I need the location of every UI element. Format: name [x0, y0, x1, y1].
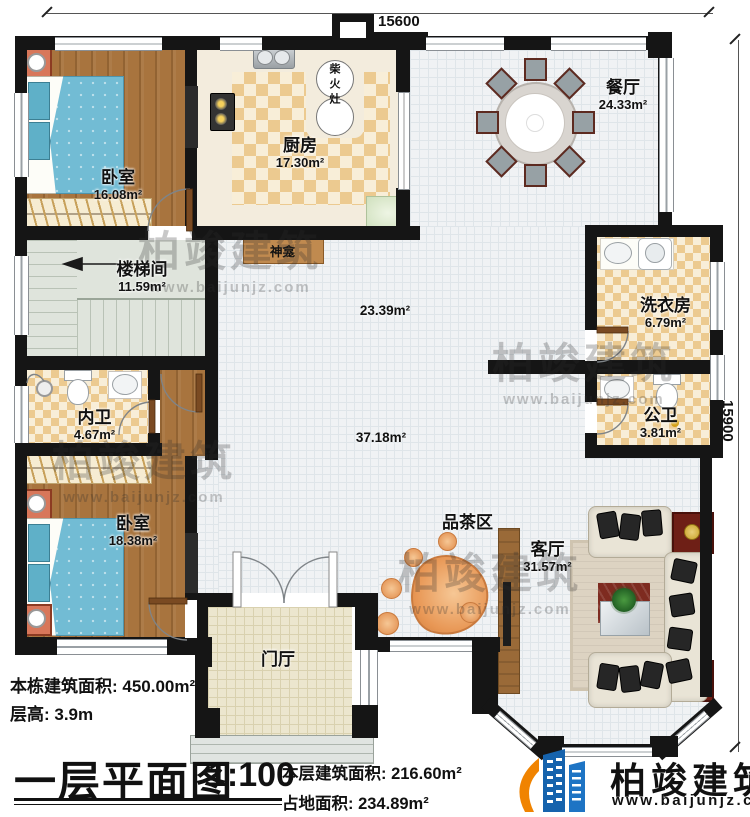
inner-bath-label: 内卫 4.67m² [52, 408, 137, 442]
building-total-area: 本栋建筑面积: 450.00m² [10, 672, 195, 697]
toilet-bowl [67, 379, 89, 405]
tea-stool-icon [460, 602, 481, 623]
bedroom2-label: 卧室 18.38m² [83, 514, 183, 548]
laundry-label: 洗衣房 6.79m² [618, 296, 713, 330]
public-bath-label: 公卫 3.81m² [618, 406, 703, 440]
bedroom1-label: 卧室 16.08m² [58, 168, 178, 202]
laundry-door-opening [585, 330, 597, 361]
pillow-icon [28, 564, 50, 602]
washbasin-bowl [604, 379, 630, 399]
end-table-medallion [684, 524, 700, 540]
wall-foyer-top-right [333, 593, 355, 607]
dimension-tick [41, 6, 52, 17]
bedroom1-door-opening [148, 226, 192, 240]
window-tea-south [390, 640, 472, 652]
room-area: 16.08m² [58, 188, 178, 203]
wall-public-bath-bottom [585, 445, 723, 458]
wall-kitchen-dining-top [396, 50, 410, 92]
room-name: 门厅 [238, 650, 318, 670]
tea-stool-icon [381, 578, 402, 599]
tea-stool-icon [404, 548, 423, 567]
tea-stool-icon [376, 612, 399, 635]
wood-stove-label: 柴火灶 [326, 63, 342, 133]
tv-icon [503, 582, 511, 646]
room-name: 餐厅 [578, 78, 668, 98]
room-area: 17.30m² [250, 156, 350, 171]
lamp-icon [27, 53, 46, 72]
room-name: 客厅 [500, 540, 595, 560]
dining-chair-icon [524, 58, 547, 81]
lamp-icon [27, 609, 46, 628]
room-name: 内卫 [52, 408, 137, 428]
dimension-top-label: 15600 [378, 13, 420, 30]
title-rule-light [14, 804, 282, 805]
title-rule-heavy [14, 798, 282, 801]
wall-living-right [700, 458, 712, 697]
chimney-icon [332, 14, 374, 46]
sofa-pillow [596, 663, 620, 692]
wall-kitchen-dining-bottom [396, 188, 410, 240]
sofa-pillow [641, 509, 663, 537]
tea-area-label: 品茶区 [420, 513, 515, 533]
room-name: 品茶区 [420, 513, 515, 533]
sofa-pillow [618, 513, 641, 541]
dimension-right-label: 15900 [719, 400, 736, 442]
tea-stool-icon [438, 532, 457, 551]
window-dining-top-left [426, 37, 504, 51]
floor-height: 层高: 3.9m [10, 700, 93, 725]
wall-foyer-top-left [195, 593, 237, 607]
closet-corridor-floor [160, 370, 205, 456]
wall-stairs-bottom [15, 356, 218, 370]
land-area: 占地面积: 234.89m² [282, 790, 429, 814]
living-label: 客厅 31.57m² [500, 540, 595, 574]
window-public-bath-right [710, 355, 725, 400]
plant-icon [612, 588, 636, 612]
laundry-sink-icon [604, 242, 632, 264]
dining-chair-icon [476, 111, 499, 134]
wall-inner-bath-bottom [15, 443, 162, 456]
room-area: 4.67m² [52, 428, 137, 443]
shrine-label: 神龛 [243, 241, 322, 260]
sofa-pillow [668, 592, 695, 617]
window-foyer-right [360, 650, 378, 705]
washbasin-bowl [112, 374, 138, 395]
wall-stairs-east [205, 240, 218, 460]
tv-panel-icon [185, 86, 198, 148]
wall-laundry-top [585, 225, 723, 237]
pillow-icon [28, 82, 50, 120]
room-area: 3.81m² [618, 426, 703, 441]
window-inner-bath-left [14, 386, 29, 443]
hall-area-upper: 23.39m² [340, 303, 430, 318]
room-area: 18.38m² [83, 534, 183, 549]
room-name: 洗衣房 [618, 296, 713, 316]
dimension-line-right [738, 40, 739, 752]
foyer-threshold [237, 593, 333, 607]
sofa-pillow [618, 665, 641, 693]
foyer-pillar [352, 708, 378, 738]
dining-chair-icon [524, 164, 547, 187]
room-name: 公卫 [618, 406, 703, 426]
stairs-flight-horizontal [77, 300, 205, 356]
stairs-landing-edge [77, 298, 205, 300]
sink-basin [257, 50, 273, 65]
floor-plan-canvas: 柴火灶 神龛 [0, 0, 750, 817]
inner-bath-door-opening [148, 400, 160, 433]
lamp-icon [27, 494, 46, 513]
room-area: 11.59m² [92, 280, 192, 295]
brand-logo-icon [505, 748, 605, 814]
room-name: 卧室 [83, 514, 183, 534]
wall-foyer-right-column [355, 593, 378, 650]
tv-panel-icon [185, 533, 198, 593]
room-name: 楼梯间 [92, 260, 192, 280]
pillow-icon [28, 524, 50, 562]
burner [215, 113, 227, 125]
sliding-door-icon [398, 92, 410, 190]
window-kitchen-top [220, 37, 262, 51]
pillow-icon [28, 122, 50, 160]
wardrobe-icon [24, 452, 152, 484]
sofa-pillow [667, 626, 694, 651]
foyer-floor [208, 607, 352, 735]
room-name: 厨房 [250, 136, 350, 156]
shower-head-icon [36, 380, 53, 397]
dimension-tick [703, 6, 714, 17]
floor-area: 本层建筑面积: 216.60m² [282, 760, 462, 784]
stairwell-label: 楼梯间 11.59m² [92, 260, 192, 294]
dining-chair-icon [572, 111, 595, 134]
sofa-pillow [670, 558, 698, 585]
window-bedroom2-bottom [57, 639, 167, 655]
wall-hall-north [15, 226, 420, 240]
room-area: 31.57m² [500, 560, 595, 575]
window-bedroom1-left [14, 93, 29, 177]
public-bath-door-opening [585, 402, 597, 433]
room-area: 24.33m² [578, 98, 668, 113]
bedroom2-door-opening [185, 600, 197, 638]
foyer-pillar [195, 708, 220, 738]
dining-table-center [526, 114, 544, 132]
brand-url: www.baijunjz.com [612, 792, 750, 809]
window-bedroom1-top [55, 37, 162, 51]
window-stairs-left [14, 256, 29, 335]
room-area: 6.79m² [618, 316, 713, 331]
wall-hall-living-divider [488, 360, 710, 374]
stairs-flight-vertical [27, 240, 77, 356]
hall-floor-west [197, 460, 218, 595]
washing-machine-drum [645, 243, 665, 263]
window-dining-top-right [551, 37, 646, 51]
dining-label: 餐厅 24.33m² [578, 78, 668, 112]
hall-area-lower: 37.18m² [336, 430, 426, 445]
room-name: 卧室 [58, 168, 178, 188]
sofa-pillow [596, 510, 620, 539]
foyer-label: 门厅 [238, 650, 318, 670]
burner [215, 98, 227, 110]
kitchen-label: 厨房 17.30m² [250, 136, 350, 170]
sink-basin [274, 50, 290, 65]
